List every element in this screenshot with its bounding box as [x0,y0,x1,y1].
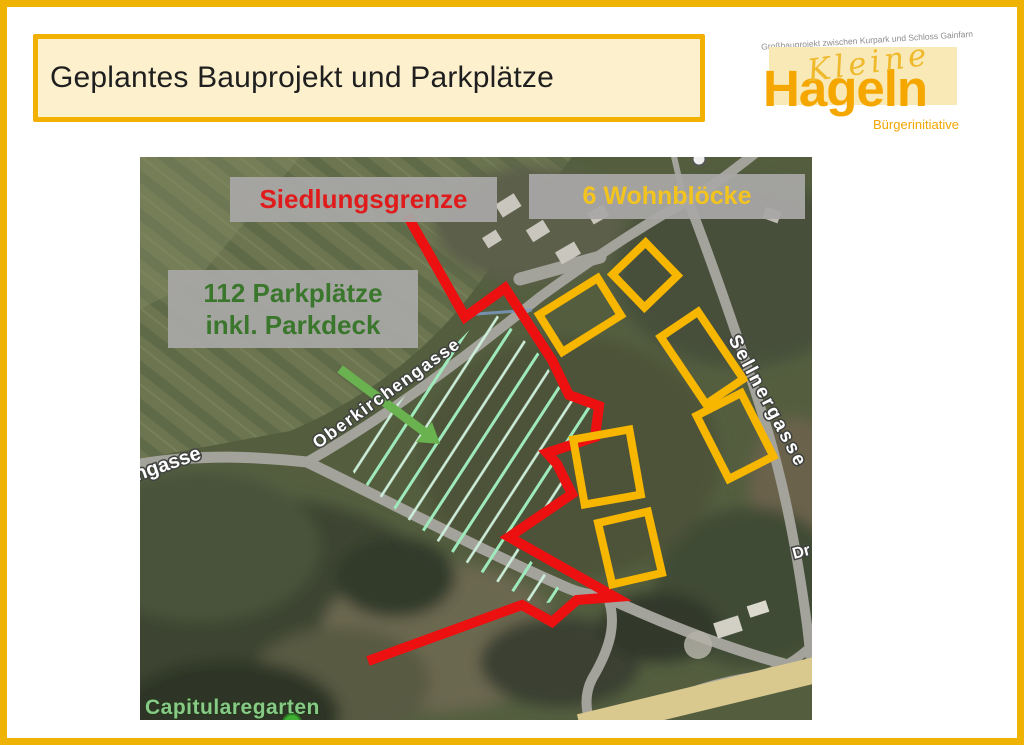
title-box: Geplantes Bauprojekt und Parkplätze [33,34,705,122]
page-title: Geplantes Bauprojekt und Parkplätze [50,61,554,95]
annotation-text-line1: 112 Parkplätze [203,277,382,310]
annotation-text: Siedlungsgrenze [259,183,467,216]
road-circle [684,631,712,659]
annotation-parking: 112 Parkplätze inkl. Parkdeck [168,270,418,348]
annotation-apartment-blocks: 6 Wohnblöcke [529,174,805,219]
map-symbol-top [693,157,706,166]
slide: Geplantes Bauprojekt und Parkplätze Groß… [0,0,1024,745]
annotation-text: 6 Wohnblöcke [582,181,751,212]
annotation-settlement-boundary: Siedlungsgrenze [230,177,497,222]
satellite-map: Oberkirchengasse ngasse Sellnergasse Dr … [140,157,812,720]
annotation-text-line2: inkl. Parkdeck [206,309,381,342]
initiative-logo: Großbauprojekt zwischen Kurpark und Schl… [755,27,975,145]
map-graphic: Oberkirchengasse ngasse Sellnergasse Dr … [140,157,812,720]
logo-subtitle: Bürgerinitiative [873,117,959,132]
